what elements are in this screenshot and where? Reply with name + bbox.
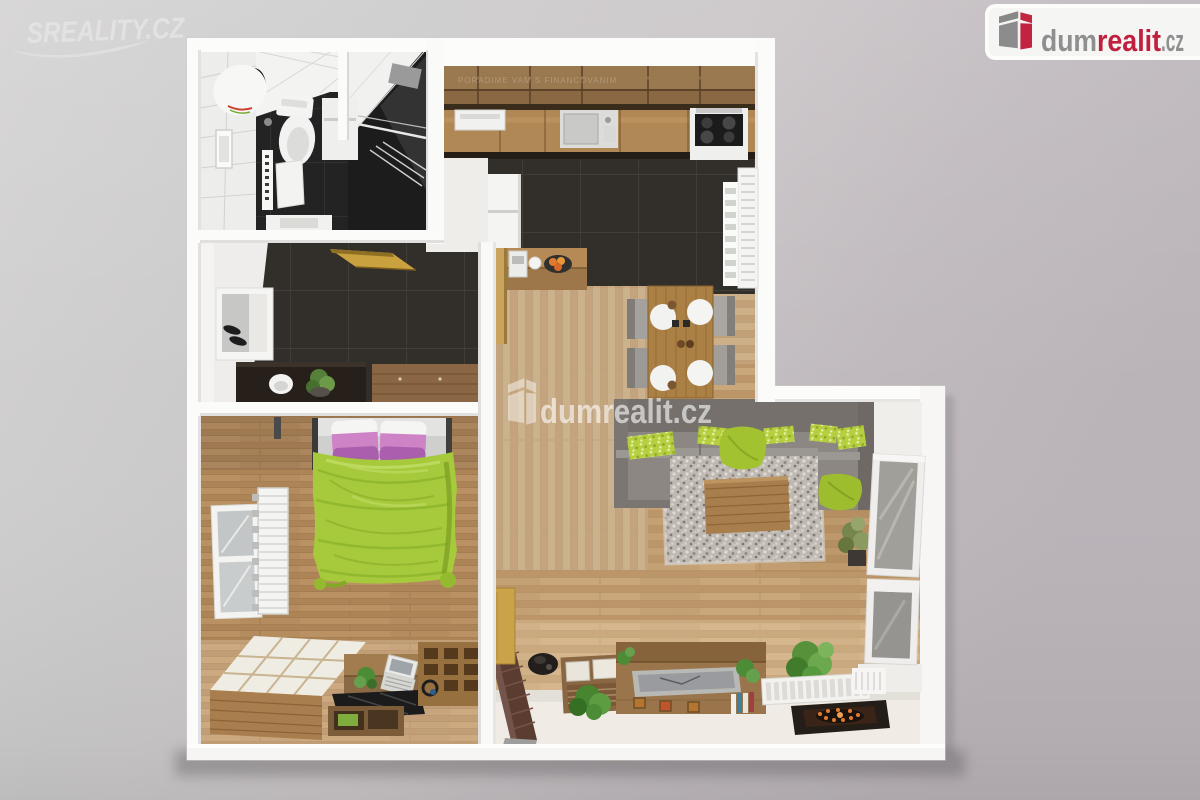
svg-text:dum: dum: [1041, 23, 1097, 58]
svg-text:dumrealit.cz: dumrealit.cz: [540, 393, 712, 431]
svg-text:SREALITY.CZ: SREALITY.CZ: [26, 12, 186, 50]
svg-text:realit: realit: [1097, 23, 1161, 58]
svg-text:PORADIME VAM S FINANCOVANIM: PORADIME VAM S FINANCOVANIM: [458, 76, 617, 85]
svg-text:.cz: .cz: [1161, 23, 1184, 58]
